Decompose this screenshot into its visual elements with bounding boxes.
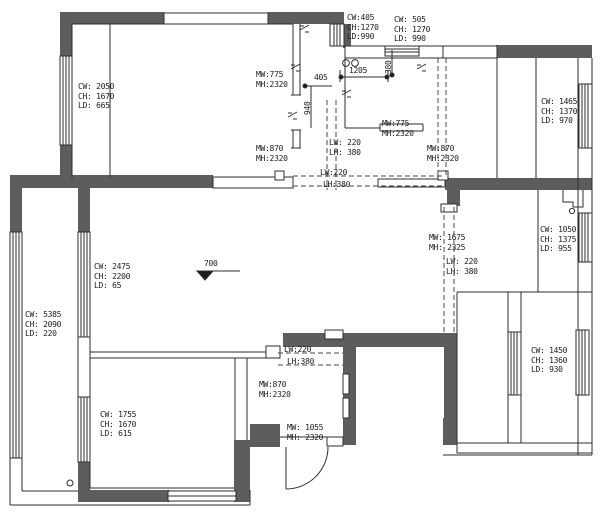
beam-dim-label: LW:220 xyxy=(284,345,311,355)
window-balcony-outer xyxy=(10,232,22,458)
dimension-value: 380 xyxy=(384,60,393,74)
door-dim-label: MW:870MH:2320 xyxy=(259,380,291,399)
window-dim-label: CW:405CH:1270LD:990 xyxy=(347,13,379,42)
beam-dim-label: LW:220 xyxy=(320,168,347,178)
window-top-right xyxy=(579,84,592,148)
window-bottom-right-inner xyxy=(508,332,521,395)
dimension-value: 940 xyxy=(303,101,312,115)
window-kitchen-top xyxy=(385,46,419,56)
beam-dim-label: LH:380 xyxy=(287,357,314,367)
window-dim-label: CW: 1050CH: 1375LD: 955 xyxy=(540,225,576,254)
dimension-value: 1205 xyxy=(349,66,367,75)
entry-door-swing xyxy=(286,447,328,489)
drain-icon xyxy=(569,208,574,213)
door-dim-label: MW: 1055MH: 2320 xyxy=(287,423,323,442)
beam-dim-label: LW: 220LH: 380 xyxy=(329,138,361,157)
door-dim-label: MW:870MH:2320 xyxy=(427,144,459,163)
elevation-marker-icon xyxy=(197,271,240,280)
fixture-icon xyxy=(288,112,297,119)
beam-dim-label: LH:380 xyxy=(323,180,350,190)
door-dim-label: MW: 1675MH: 2325 xyxy=(429,233,465,252)
fixture-icon xyxy=(291,64,300,71)
window-dim-label: CW: 2475CH: 2200LD: 65 xyxy=(94,262,130,291)
window-bottom-right-outer xyxy=(576,330,589,395)
window-dim-label: CW: 1450CH: 1360LD: 930 xyxy=(531,346,567,375)
window-bottom-left xyxy=(78,397,90,462)
drain-icon xyxy=(67,480,73,486)
fixture-icon xyxy=(342,90,351,97)
window-dim-label: CW: 1755CH: 1670LD: 615 xyxy=(100,410,136,439)
window-dim-label: CW: 1465CH: 1370LD: 970 xyxy=(541,97,577,126)
fixtures xyxy=(67,25,575,486)
door-dim-label: MW:775MH:2320 xyxy=(256,70,288,89)
beam-dim-label: LW: 220LH: 380 xyxy=(446,257,478,276)
window-dim-label: CW: 2050CH: 1670LD: 665 xyxy=(78,82,114,111)
dimension-value: 405 xyxy=(314,73,328,82)
floorplan: CW: 2050CH: 1670LD: 665 MW:775MH:2320 MW… xyxy=(0,0,600,515)
window-dim-label: CW: 505CH: 1270LD: 990 xyxy=(394,15,430,44)
door-dim-label: MW:870MH:2320 xyxy=(256,144,288,163)
window-dim-label: CW: 5385CH: 2090LD: 220 xyxy=(25,310,61,339)
window-right-mid xyxy=(579,213,592,262)
fixture-icon xyxy=(300,25,309,32)
window-top-left xyxy=(60,56,72,145)
elevation-value: 700 xyxy=(204,259,218,268)
window-balcony-inner xyxy=(78,232,90,337)
dimension-lines xyxy=(303,50,394,128)
fixture-icon xyxy=(417,64,426,71)
window-kitchen-corner xyxy=(330,24,344,46)
door-dim-label: MW:775MH:2320 xyxy=(382,119,414,138)
